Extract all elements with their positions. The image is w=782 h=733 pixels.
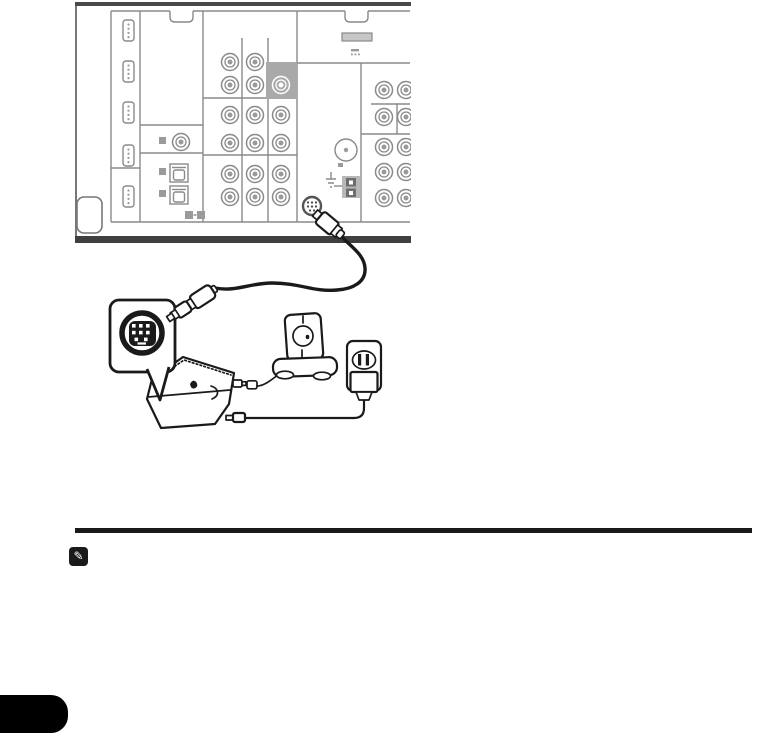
rca-jack <box>222 166 239 183</box>
hdmi-port <box>123 186 134 207</box>
outlet-slot <box>366 354 369 366</box>
rca-jack <box>247 77 264 94</box>
rca-jack <box>398 139 415 156</box>
receiver-bottom-edge <box>75 236 411 243</box>
rca-jack <box>222 54 239 71</box>
rca-jack <box>247 166 264 183</box>
chassis-left-cutout <box>77 197 102 233</box>
adapter-body <box>351 372 378 392</box>
note-section-rule <box>75 528 752 533</box>
rca-jack <box>376 164 393 181</box>
rca-jack <box>273 166 290 183</box>
mini-din-cable <box>215 235 365 290</box>
vent-slot <box>342 33 372 41</box>
rca-jack <box>273 135 290 152</box>
hdmi-ports <box>123 20 134 207</box>
label-square <box>159 137 166 144</box>
rca-jack <box>273 107 290 124</box>
rca-jack <box>247 107 264 124</box>
rca-jack <box>376 109 393 126</box>
top-cutout-notch <box>345 11 368 22</box>
rca-jack <box>398 109 415 126</box>
rca-jack <box>173 134 190 151</box>
top-cutout-notch <box>170 11 193 22</box>
hdmi-port <box>123 20 134 41</box>
optical-port <box>170 164 188 182</box>
mini-din-connector-face <box>122 313 162 353</box>
rca-jack <box>247 189 264 206</box>
pencil-note-icon: ✎ <box>69 547 88 566</box>
rca-jack <box>222 189 239 206</box>
rca-jack <box>222 135 239 152</box>
antenna-jack-plug <box>233 380 242 387</box>
rca-jack <box>398 190 415 207</box>
rca-jack <box>273 189 290 206</box>
antenna-logo-icon <box>306 335 310 339</box>
power-cable <box>245 399 364 418</box>
page-number-badge <box>0 695 68 733</box>
fm-antenna-jack <box>335 139 357 161</box>
label-square <box>159 190 166 197</box>
hdmi-port <box>123 145 134 166</box>
optical-ports <box>170 164 188 204</box>
receiver-rear-panel <box>75 2 415 243</box>
rca-jack <box>247 54 264 71</box>
am-antenna-terminals <box>326 172 360 198</box>
rca-jack <box>398 82 415 99</box>
rca-jack <box>376 82 393 99</box>
rca-jack <box>376 139 393 156</box>
label-square <box>185 211 193 219</box>
outlet-slot <box>358 354 361 366</box>
antenna-unit <box>257 313 337 386</box>
optical-port <box>170 186 188 204</box>
label-square <box>197 211 205 219</box>
dc-plug <box>233 413 245 422</box>
connector-callout <box>110 300 175 400</box>
hdmi-port <box>123 102 134 123</box>
rca-jack <box>398 164 415 181</box>
rca-jack <box>376 190 393 207</box>
connection-diagram <box>0 0 782 722</box>
rca-jack <box>222 77 239 94</box>
hdmi-port <box>123 61 134 82</box>
rca-jack <box>247 135 264 152</box>
rca-jack <box>222 107 239 124</box>
receiver-top-edge <box>75 2 411 6</box>
label-square <box>159 168 166 175</box>
